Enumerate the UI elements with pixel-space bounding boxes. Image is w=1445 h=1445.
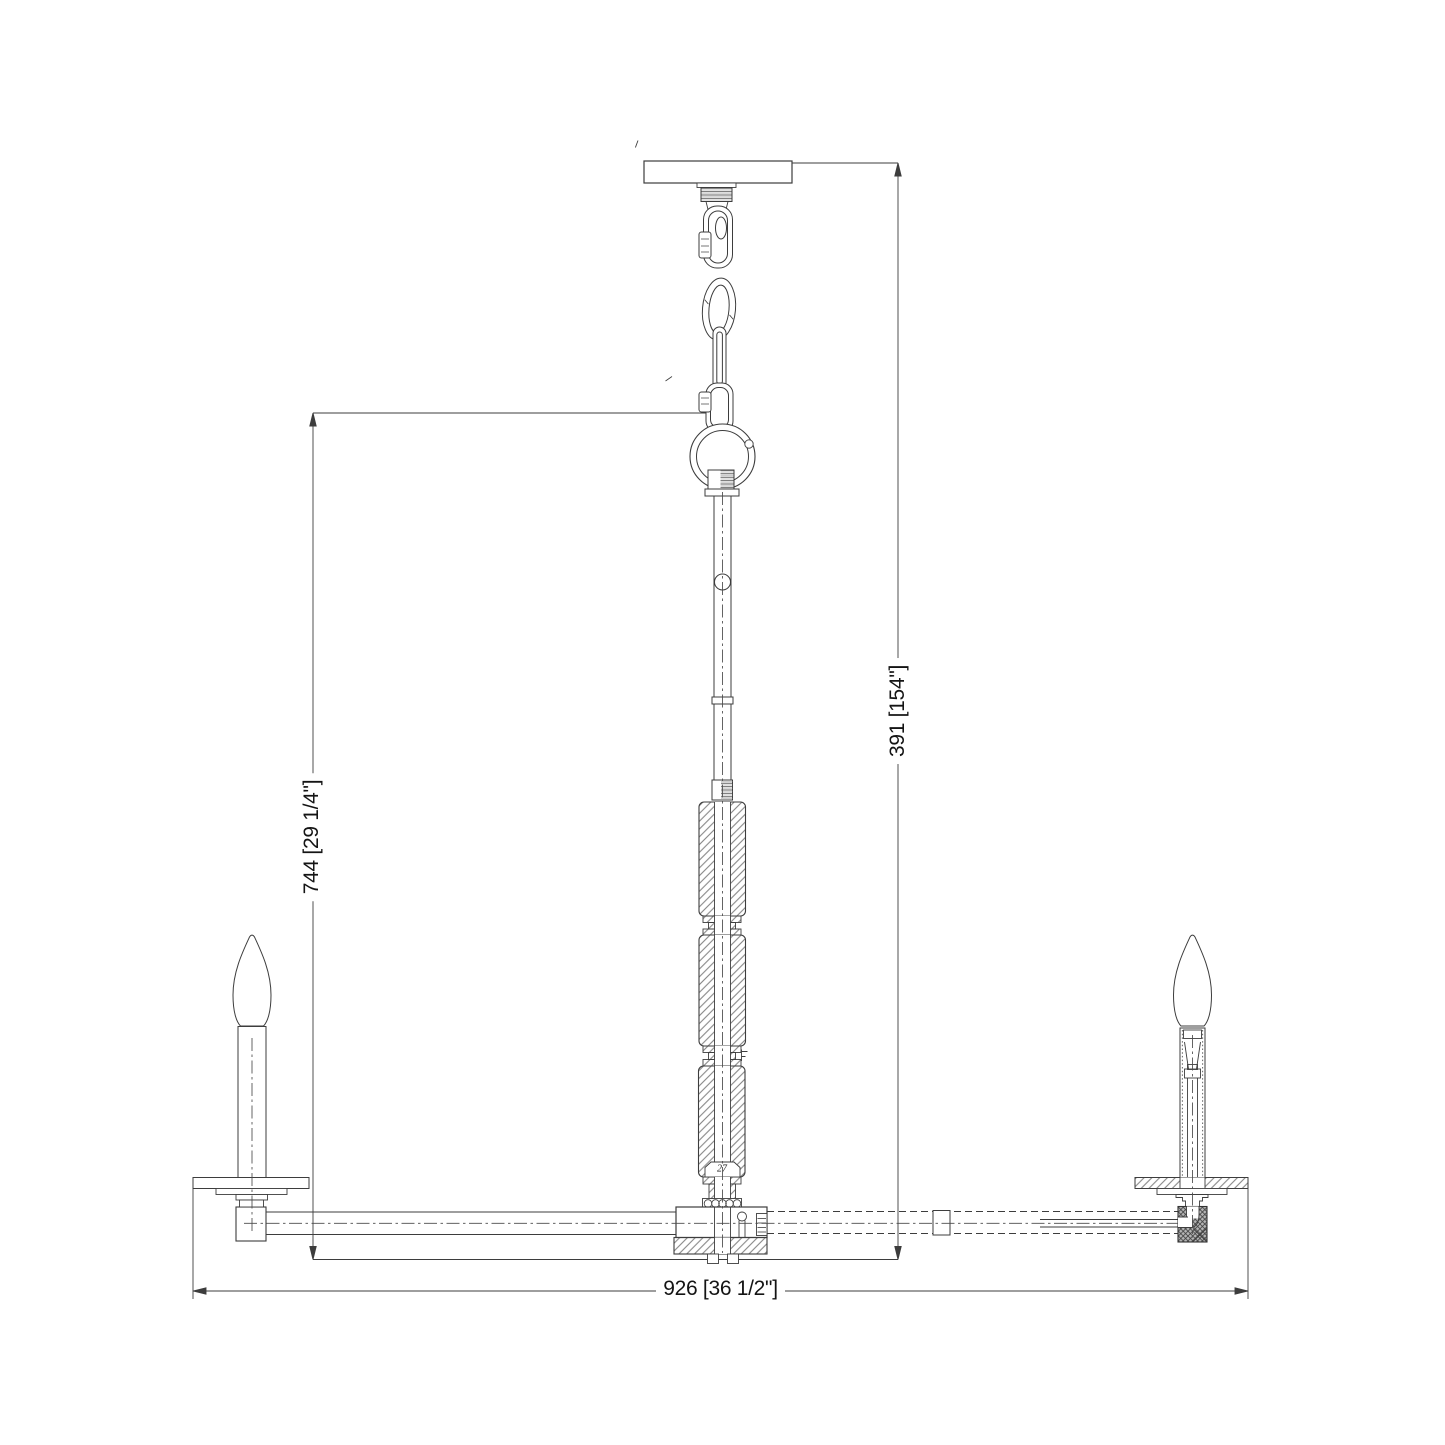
dimension-label-overall-height: 391 [154"] [886, 658, 910, 764]
center-hub [674, 1207, 767, 1264]
chain-link-narrow [713, 327, 726, 389]
threaded-nipple [701, 188, 732, 202]
candle-bulb [233, 935, 271, 1026]
chandelier-spec-sheet: 926 [36 1/2"] 744 [29 1/4"] 391 [154"] 2… [0, 0, 1445, 1445]
right-candle [1135, 935, 1248, 1242]
candle-elbow-block [236, 1207, 266, 1241]
stem-section-label: 27 [717, 1164, 727, 1175]
ceiling-canopy [635, 141, 792, 212]
left-candle [193, 935, 309, 1241]
dimension-width-text: 926 [36 1/2"] [656, 1277, 784, 1300]
dimension-label-body-height: 744 [29 1/4"] [300, 773, 324, 901]
right-arm [767, 1211, 1178, 1236]
dimension-overall-height-text: 391 [154"] [886, 658, 909, 764]
small-annotation-mark [742, 1050, 748, 1062]
ring-screw [745, 440, 753, 448]
centerline-tick [635, 141, 638, 148]
arm-coupler [933, 1211, 950, 1236]
bobeche [193, 1178, 309, 1189]
stem-cylinders [699, 802, 748, 1209]
ring-coupler [705, 470, 739, 496]
quick-link-upper [699, 206, 733, 268]
dimension-label-width: 926 [36 1/2"] [193, 1277, 1248, 1301]
dimension-body-height-text: 744 [29 1/4"] [300, 773, 323, 901]
candle-bulb [1174, 935, 1212, 1026]
chandelier-line-drawing [0, 0, 1445, 1445]
hang-chain [666, 206, 739, 432]
